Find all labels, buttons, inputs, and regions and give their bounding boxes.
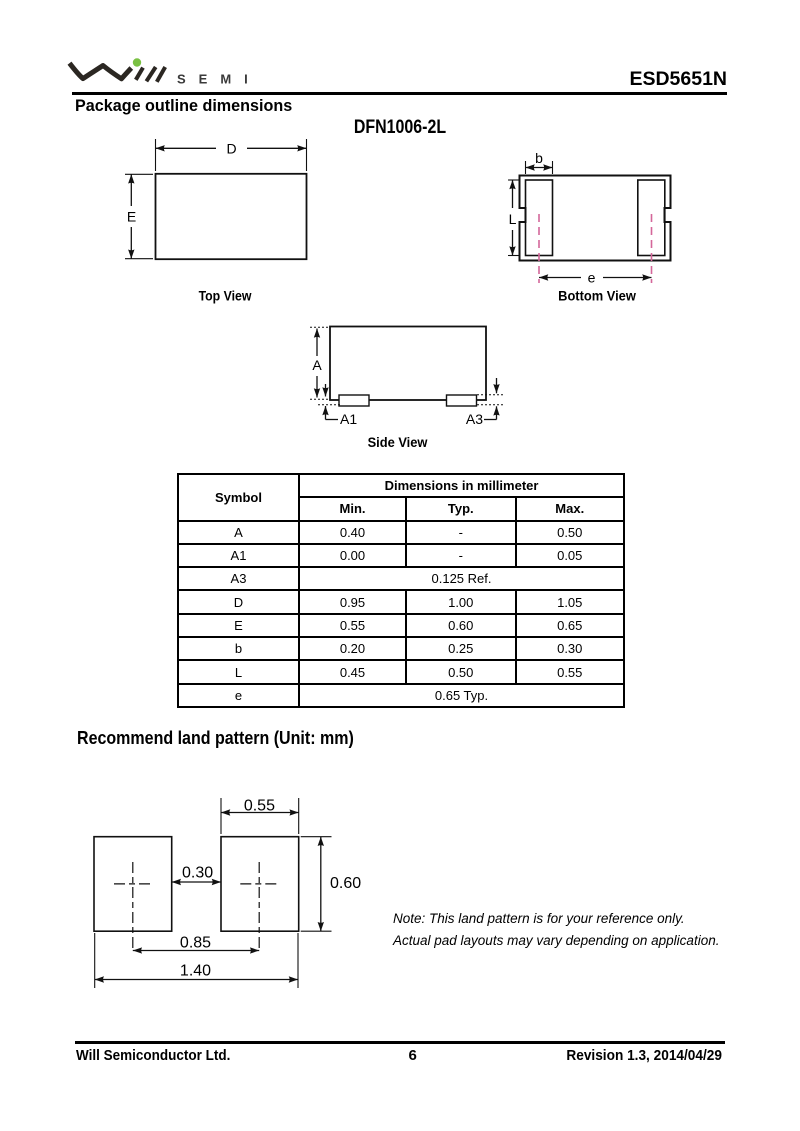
svg-text:D: D xyxy=(226,141,236,157)
svg-text:E: E xyxy=(127,209,136,225)
svg-text:1.40: 1.40 xyxy=(180,962,211,979)
svg-text:A3: A3 xyxy=(466,411,483,427)
svg-text:Side View: Side View xyxy=(368,434,428,450)
svg-text:e: e xyxy=(588,270,596,286)
svg-text:L: L xyxy=(509,211,517,227)
svg-text:A1: A1 xyxy=(340,411,357,427)
svg-text:0.85: 0.85 xyxy=(180,934,211,951)
svg-text:Bottom View: Bottom View xyxy=(558,288,636,304)
svg-text:0.60: 0.60 xyxy=(330,875,361,892)
svg-text:A: A xyxy=(312,357,322,373)
svg-text:b: b xyxy=(535,150,543,166)
svg-text:Top View: Top View xyxy=(199,288,253,304)
svg-text:0.55: 0.55 xyxy=(244,798,275,815)
svg-text:0.30: 0.30 xyxy=(182,865,213,882)
